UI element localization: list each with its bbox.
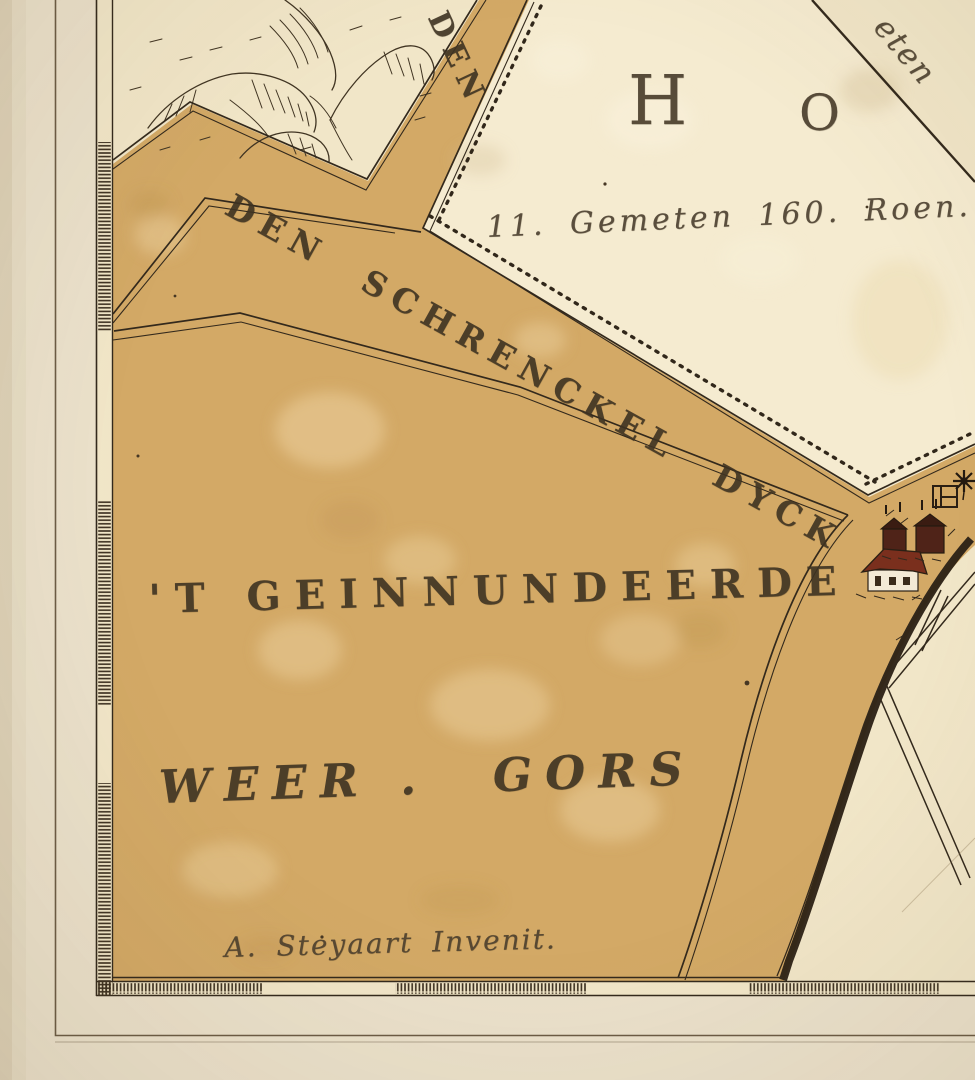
parcel-letter-o: O bbox=[799, 84, 840, 142]
polder-name-gors: GORS bbox=[492, 741, 697, 802]
parcel-letter-h: H bbox=[628, 62, 687, 141]
antique-map: DEN SCHRENCKEL DYCK DEN H O 11. Gemeten … bbox=[0, 0, 975, 1080]
polder-name-weer: WEER . bbox=[158, 751, 430, 814]
